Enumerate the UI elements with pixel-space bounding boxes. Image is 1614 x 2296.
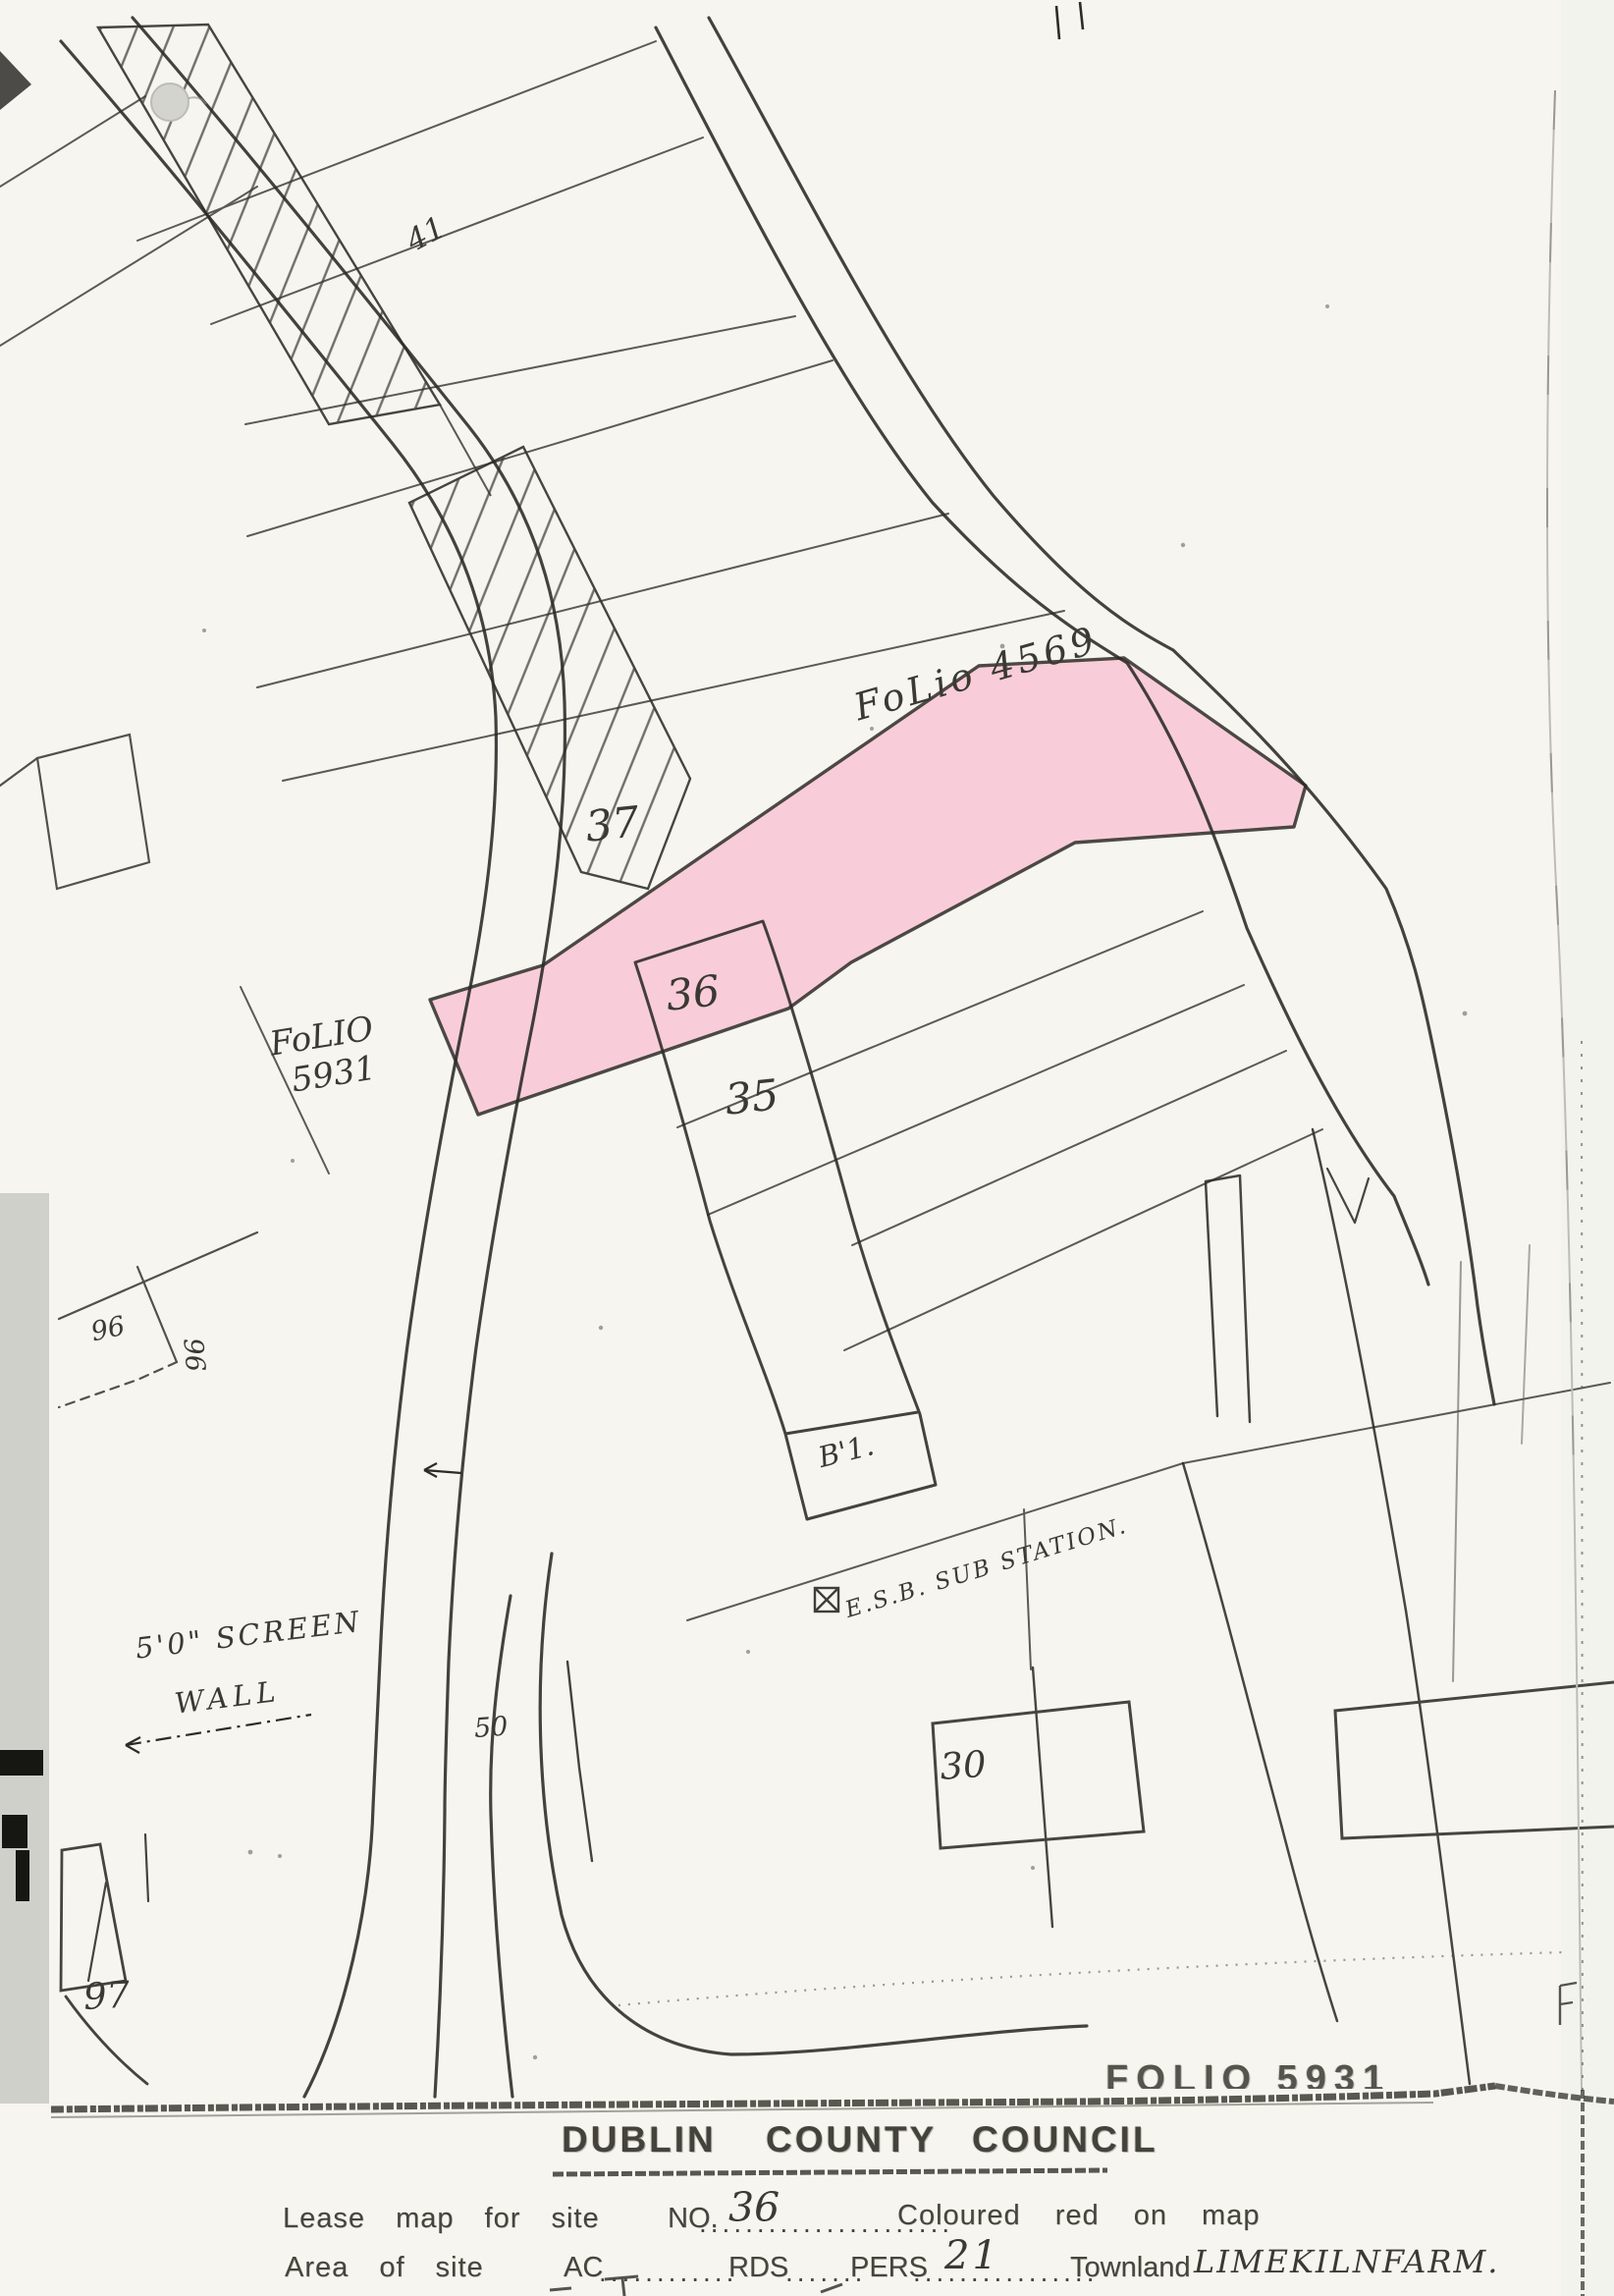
label-site-96-b: 96 — [180, 1337, 213, 1373]
branch-road-3 — [567, 1662, 592, 1861]
label-folio-5931: FoLIO 5931 — [267, 1009, 382, 1103]
area-ac-label: AC — [564, 2252, 603, 2284]
scanned-lease-map-page: FoLio 4569 FoLIO 5931 41 37 36 35 96 96 … — [0, 0, 1614, 2296]
title-word-council: COUNCIL — [972, 2119, 1158, 2160]
long-diagonal-1 — [1313, 1129, 1470, 2084]
branch-road-2 — [540, 1554, 1087, 2054]
branch-road-1 — [491, 1596, 512, 2097]
area-rds-label: RDS — [728, 2252, 788, 2284]
title-word-dublin: DUBLIN — [562, 2119, 717, 2160]
parcel-97 — [61, 1834, 148, 2084]
area-townland-label: Townland — [1070, 2252, 1191, 2284]
area-line-prefix: Area of site — [285, 2252, 484, 2284]
hatched-parcel-37 — [409, 447, 690, 889]
long-diagonal-2 — [1183, 1463, 1337, 2021]
area-dots-a: ............ — [599, 2257, 737, 2288]
road-arrow — [424, 1463, 461, 1477]
title-word-county: COUNTY — [766, 2119, 937, 2160]
label-site-97: 97 — [82, 1974, 131, 2018]
screen-wall-leader — [126, 1715, 311, 1753]
dotted-boundary — [619, 1952, 1563, 2005]
area-townland-value: LIMEKILNFARM. — [1194, 2243, 1499, 2280]
scan-left-margin — [0, 1193, 49, 2104]
label-site-35: 35 — [723, 1070, 781, 1124]
map-line-art — [0, 0, 1614, 2296]
label-site-37: 37 — [583, 797, 642, 851]
lease-coloured-note: Coloured red on map — [897, 2200, 1260, 2232]
council-underline — [553, 2170, 1107, 2174]
bottom-right-parcels — [933, 1129, 1614, 2084]
label-road-50: 50 — [473, 1712, 509, 1744]
label-site-36: 36 — [664, 966, 723, 1020]
scan-marks — [0, 2, 1577, 2296]
area-pers-value: 21 — [944, 2233, 1000, 2278]
lease-line-prefix: Lease map for site — [283, 2203, 600, 2235]
label-site-30: 30 — [939, 1743, 988, 1788]
paper-right-margin — [1561, 0, 1614, 2296]
lease-site-no-value: 36 — [728, 2184, 780, 2231]
esb-box-icon — [815, 1588, 838, 1612]
